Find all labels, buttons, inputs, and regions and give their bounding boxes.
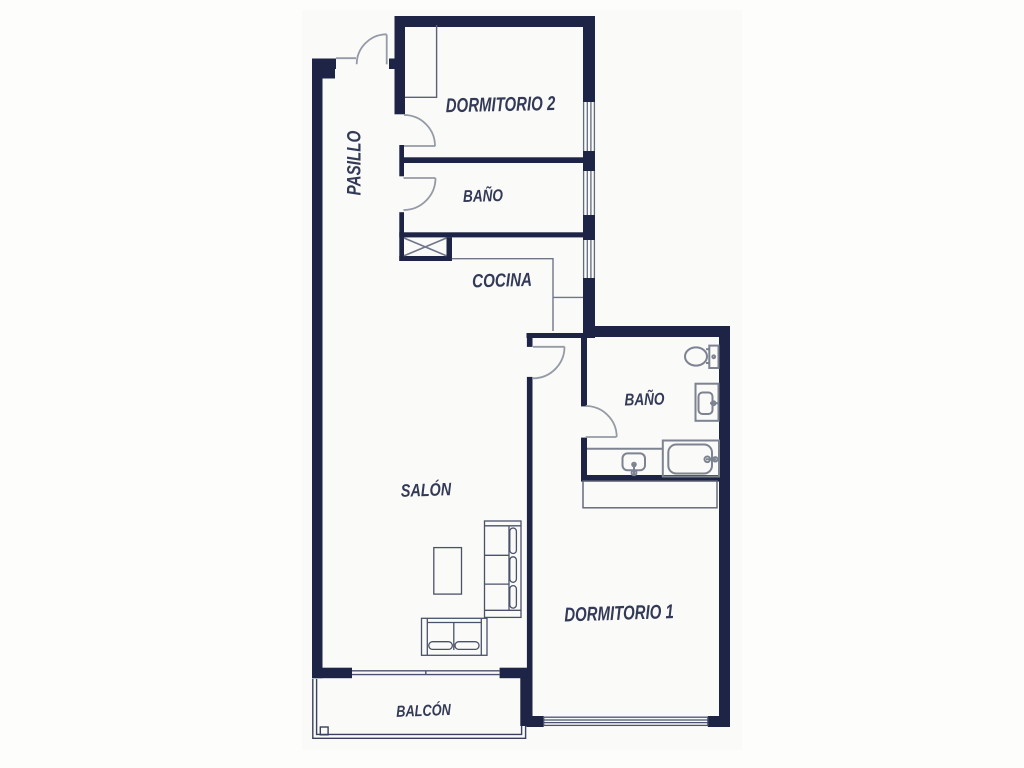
svg-text:BALCÓN: BALCÓN bbox=[396, 699, 452, 721]
svg-text:DORMITORIO 1: DORMITORIO 1 bbox=[564, 600, 674, 626]
svg-text:SALÓN: SALÓN bbox=[400, 479, 452, 502]
svg-text:BAÑO: BAÑO bbox=[624, 389, 665, 410]
svg-text:DORMITORIO 2: DORMITORIO 2 bbox=[445, 92, 555, 117]
svg-text:BAÑO: BAÑO bbox=[463, 185, 504, 206]
svg-text:PASILLO: PASILLO bbox=[343, 130, 365, 195]
svg-text:COCINA: COCINA bbox=[472, 268, 532, 292]
